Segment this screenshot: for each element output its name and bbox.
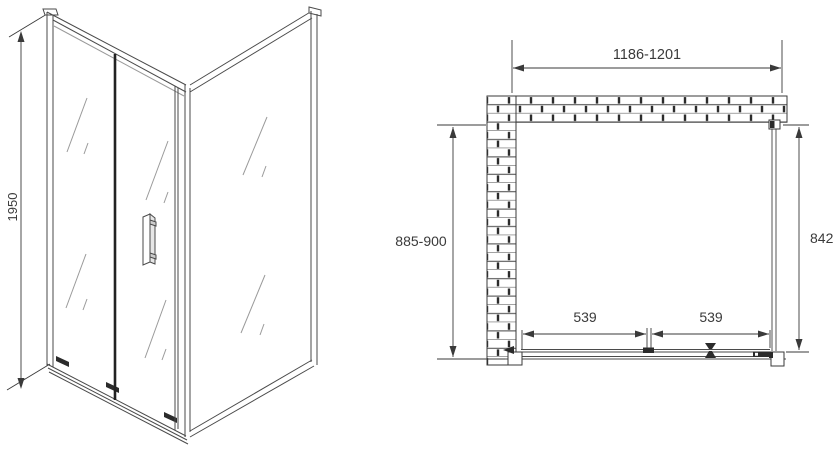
- roller-bracket: [106, 382, 119, 393]
- center-clamp: [643, 348, 654, 354]
- front-perspective-view: 1950: [5, 7, 321, 444]
- plan-top-view: 1186-1201 885-900 842: [395, 40, 833, 366]
- arrowhead-left: [523, 331, 534, 338]
- wall-left-column: [487, 96, 516, 365]
- bottom-roller-brackets: [56, 356, 177, 423]
- arrowhead-left: [513, 65, 524, 72]
- corner-clip: [769, 352, 773, 358]
- side-glass-label: 842: [810, 230, 834, 246]
- door-panel-dimensions: [522, 328, 770, 349]
- roller-bracket: [56, 356, 69, 367]
- wall-bracket-clip: [770, 121, 775, 128]
- door-track: [503, 343, 786, 366]
- bottom-rail: [47, 364, 188, 444]
- arrowhead-right: [770, 65, 781, 72]
- wall-profile: [508, 352, 522, 365]
- brick-wall: [487, 96, 787, 365]
- overall-width-label: 1186-1201: [613, 47, 681, 63]
- door-handle: [143, 214, 156, 265]
- corner-post: [185, 84, 190, 437]
- arrowhead-up: [796, 127, 803, 138]
- extension-line: [7, 364, 50, 390]
- arrowhead-up: [18, 31, 25, 42]
- top-rail: [47, 12, 186, 96]
- glass-reflection-marks: [66, 98, 267, 360]
- side-glass-panel: [769, 120, 780, 351]
- side-glass-dimension: [783, 125, 809, 352]
- arrowhead-up: [450, 127, 457, 138]
- wall-top-band: [487, 96, 787, 122]
- door-panel-right-label: 539: [699, 309, 723, 325]
- depth-dimension-label: 885-900: [395, 233, 447, 249]
- left-frame-post: [43, 9, 58, 367]
- door-panel-left-label: 539: [573, 309, 597, 325]
- arrowhead-left: [652, 331, 663, 338]
- roller-notch: [755, 353, 758, 356]
- door-handle-top: [705, 343, 716, 349]
- technical-drawing-canvas: 1950: [0, 0, 838, 452]
- arrowhead-right: [635, 331, 646, 338]
- arrowhead-down: [796, 339, 803, 350]
- side-panel: [190, 7, 321, 437]
- height-dimension-label: 1950: [5, 193, 20, 222]
- arrowhead-down: [450, 346, 457, 357]
- arrowhead-right: [758, 331, 769, 338]
- shower-enclosure-drawing: 1950: [0, 0, 838, 452]
